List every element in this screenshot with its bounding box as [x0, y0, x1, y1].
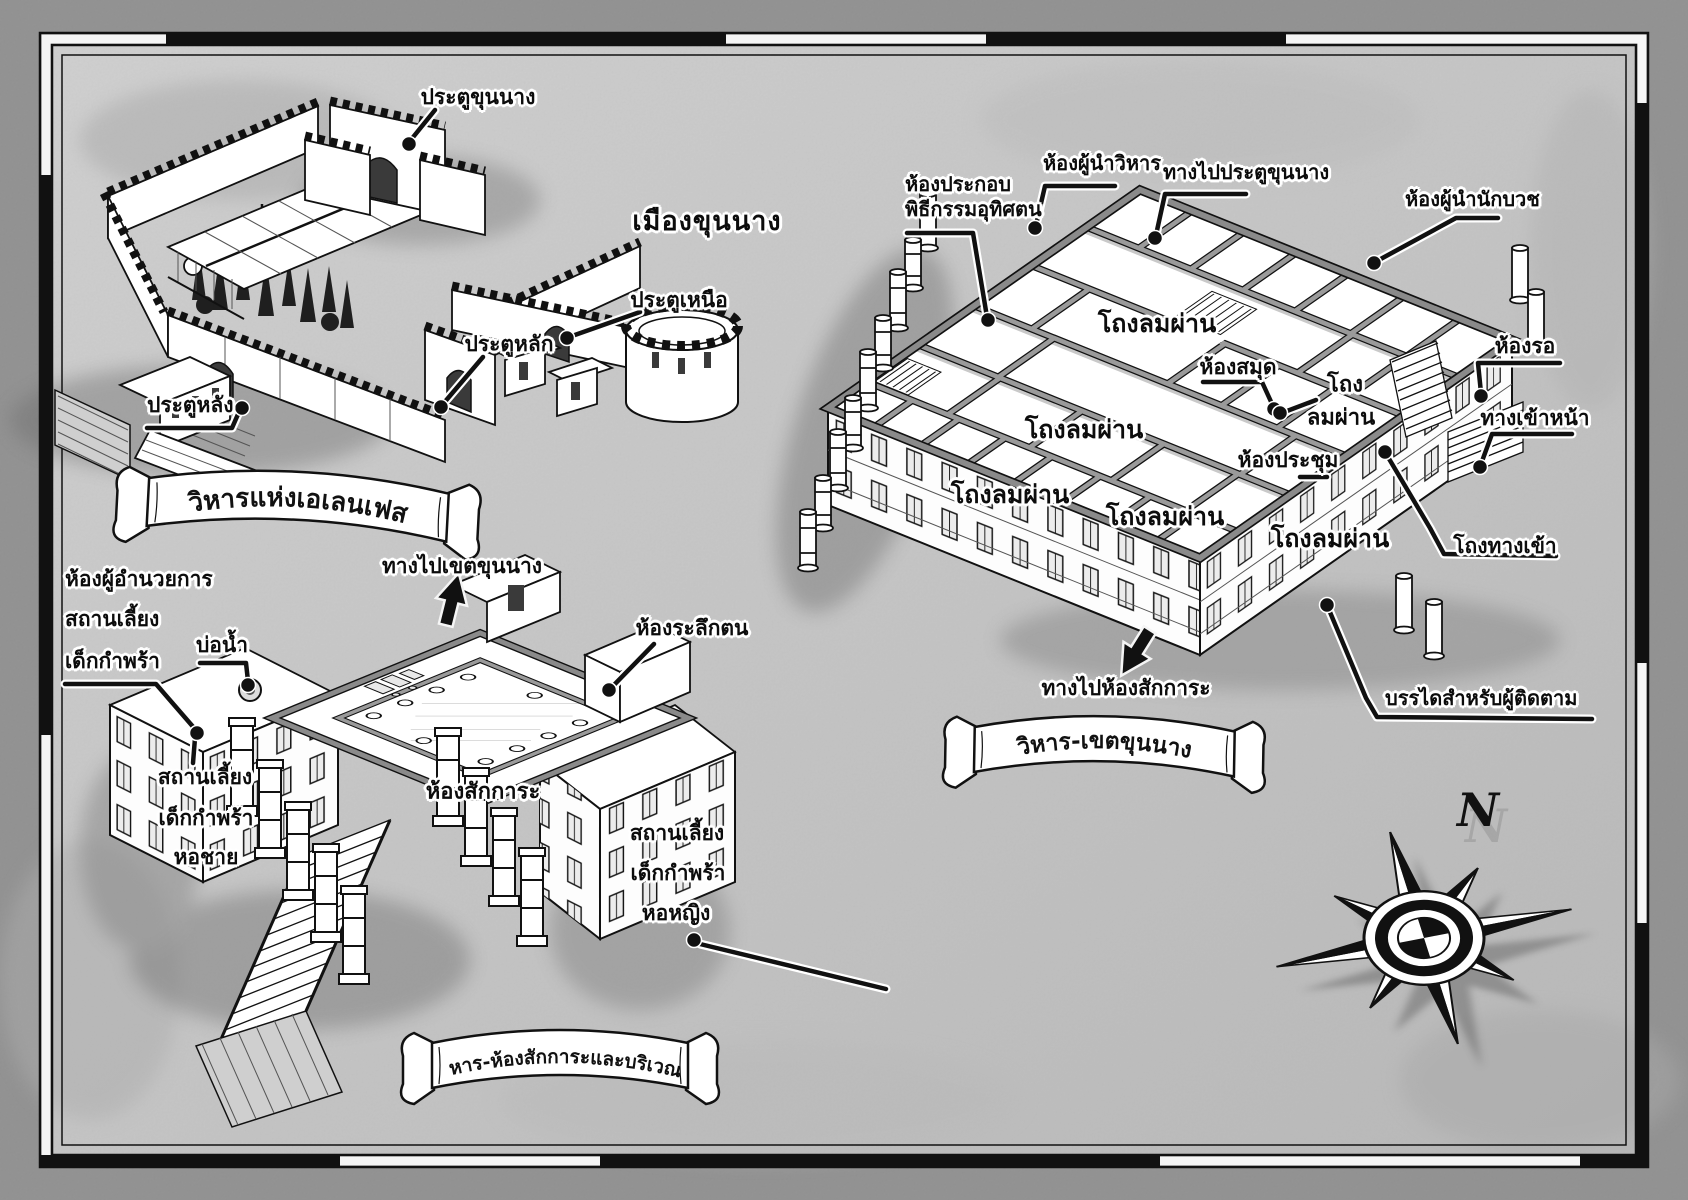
label-to-noble-area: ทางไปเขตขุนนาง [382, 555, 542, 577]
label-wind-hall-1: โถงลมผ่าน [1098, 311, 1216, 337]
label-attendant-stairs: บรรไดสำหรับผู้ติดตาม [1385, 688, 1577, 709]
label-well: บ่อน้ำ [196, 634, 248, 656]
label-orphanage-right-1: สถานเลี้ยง [630, 822, 724, 844]
label-orphanage-director-2: สถานเลี้ยง [65, 608, 159, 630]
label-entrance-hall: โถงทางเข้า [1453, 535, 1556, 557]
label-orphanage-director-3: เด็กกำพร้า [65, 650, 160, 672]
label-north-gate: ประตูเหนือ [630, 289, 728, 311]
label-wind-hall-5: โถงลมผ่าน [1271, 526, 1389, 552]
label-to-worship-room: ทางไปห้องสักการะ [1041, 677, 1210, 699]
label-orphanage-right-2: เด็กกำพร้า [631, 862, 726, 884]
label-girls-dorm: หอหญิง [642, 902, 710, 924]
label-library: ห้องสมุด [1199, 356, 1276, 378]
label-orphanage-left-1: สถานเลี้ยง [158, 766, 252, 788]
label-wind-hall-2: โถงลมผ่าน [1025, 417, 1143, 443]
label-reflection-room: ห้องระลึกตน [636, 617, 749, 639]
label-temple-head-room: ห้องผู้นำวิหาร [1043, 153, 1161, 174]
label-dedication-room-1: ห้องประกอบ [905, 174, 1011, 195]
label-dedication-room-2: พิธีกรรมอุทิศตน [905, 199, 1042, 220]
label-priest-head-room: ห้องผู้นำนักบวช [1405, 189, 1540, 210]
label-rear-gate: ประตูหลัง [147, 394, 234, 416]
label-wind-hall-4: โถงลมผ่าน [1106, 504, 1224, 530]
label-meeting-room: ห้องประชุม [1238, 449, 1339, 471]
label-boys-dorm: หอชาย [174, 846, 239, 868]
map-artwork: วิหารแห่งเอเลนเฟส วิหาร-เขตขุนนาง วิหาร-… [0, 0, 1688, 1200]
north-label: N [1455, 783, 1501, 837]
label-wind-hall-3: โถงลมผ่าน [951, 482, 1069, 508]
label-main-gate: ประตูหลัก [465, 333, 554, 355]
label-front-entrance: ทางเข้าหน้า [1480, 407, 1589, 429]
label-wind-hall-2line-1: โถง [1327, 373, 1363, 396]
fantasy-map: วิหารแห่งเอเลนเฟส วิหาร-เขตขุนนาง วิหาร-… [0, 0, 1688, 1200]
label-city-title: เมืองขุนนาง [632, 208, 781, 236]
label-worship-room: ห้องสักการะ [426, 780, 541, 803]
label-orphanage-director-1: ห้องผู้อำนวยการ [65, 568, 213, 590]
label-to-noble-gate: ทางไปประตูขุนนาง [1163, 162, 1329, 183]
label-noble-gate: ประตูขุนนาง [421, 86, 536, 108]
label-orphanage-left-2: เด็กกำพร้า [159, 807, 254, 829]
label-wind-hall-2line-2: ลมผ่าน [1307, 406, 1375, 429]
label-waiting-room: ห้องรอ [1495, 335, 1556, 357]
